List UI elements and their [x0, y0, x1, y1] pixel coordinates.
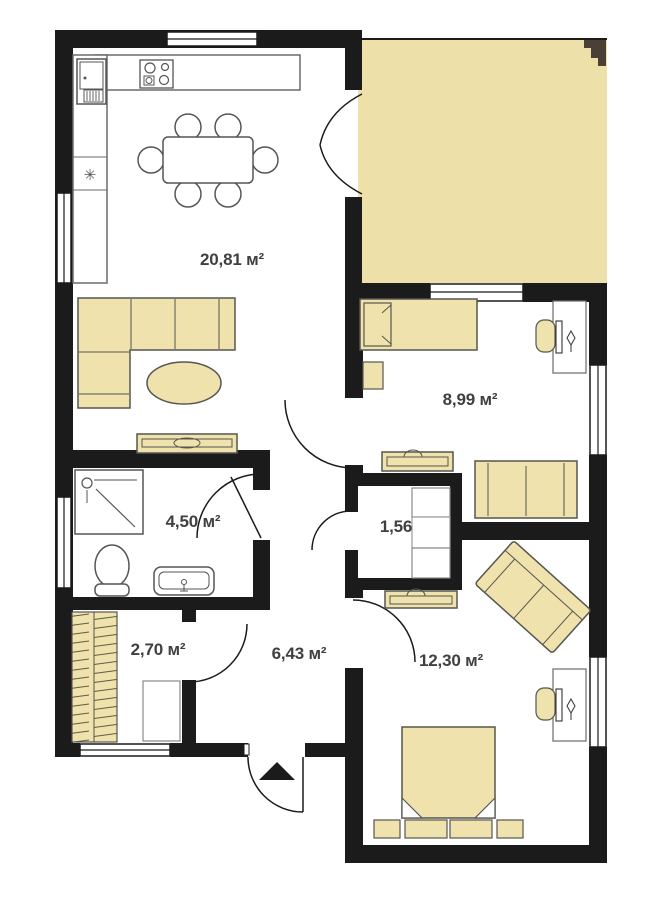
- dining-set: [138, 114, 278, 207]
- shelf: [412, 548, 450, 578]
- room-label-closet: 1,56: [380, 517, 412, 537]
- living-room-furniture: [78, 298, 237, 453]
- desk-2: [536, 669, 586, 741]
- shower: [75, 470, 143, 534]
- bedroom1-door-arc: [285, 400, 353, 468]
- room-label-bedroom-2: 12,30 м²: [419, 651, 483, 671]
- wall: [253, 540, 270, 597]
- wall: [345, 845, 607, 863]
- entrance-arrow-icon: [259, 762, 295, 780]
- floor-plan-canvas: ✳: [0, 0, 650, 900]
- room-label-hallway: 6,43 м²: [272, 644, 327, 664]
- tv-stand: [137, 434, 237, 453]
- wall: [345, 48, 362, 90]
- chair: [252, 147, 278, 173]
- room-label-living-kitchen: 20,81 м²: [200, 250, 264, 270]
- window-right-bedroom1: [590, 365, 606, 455]
- diagonal-sofa: [475, 541, 591, 654]
- pillow: [450, 820, 492, 838]
- bathroom-fixtures: [75, 470, 214, 596]
- floor-plan: ✳: [0, 0, 650, 900]
- sink: [154, 567, 214, 595]
- desk-chair: [536, 320, 555, 352]
- wall: [450, 522, 607, 540]
- fridge: [77, 59, 106, 104]
- window-bottom-wardrobe: [80, 744, 170, 756]
- console-2: [385, 589, 457, 608]
- desk-1: [536, 301, 586, 373]
- console-1: [382, 450, 453, 471]
- terrace: [358, 39, 607, 283]
- single-bed: [360, 299, 477, 350]
- freezer-icon: ✳: [84, 167, 97, 184]
- room-label-bedroom-1: 8,99 м²: [443, 390, 498, 410]
- window-top: [167, 32, 257, 46]
- room-label-wardrobe: 2,70 м²: [131, 640, 186, 660]
- door-stop: [244, 744, 249, 755]
- wall: [345, 550, 358, 578]
- kitchen-counter: [95, 55, 300, 90]
- wall: [589, 283, 607, 365]
- desk-chair: [536, 688, 555, 720]
- wardrobe-furniture: [72, 612, 180, 742]
- loveseat: [475, 461, 577, 518]
- wall: [253, 468, 270, 490]
- double-bed: [374, 727, 523, 838]
- french-door-lower-leaf: [320, 145, 362, 194]
- wall: [170, 743, 248, 757]
- bedroom2-door-arc: [353, 600, 415, 662]
- wall: [182, 610, 196, 622]
- wall: [55, 597, 270, 610]
- bed-nightstand: [374, 820, 400, 838]
- wall: [345, 486, 358, 512]
- toilet: [95, 545, 129, 596]
- closet-shelves: [412, 488, 450, 578]
- bed-nightstand: [497, 820, 523, 838]
- window-left-bathroom: [57, 497, 71, 588]
- terrace-area: [358, 40, 607, 283]
- french-door-upper-leaf: [320, 94, 362, 145]
- window-right-bedroom2: [590, 657, 606, 747]
- room-label-bathroom: 4,50 м²: [166, 512, 221, 532]
- monitor-icon: [556, 321, 562, 353]
- wall: [55, 30, 73, 757]
- chair: [215, 181, 241, 207]
- kitchen-furniture: ✳: [73, 55, 300, 283]
- wall: [345, 668, 363, 845]
- chair: [215, 114, 241, 140]
- closet-door-arc: [312, 511, 351, 550]
- shelf: [412, 488, 450, 517]
- shelf: [412, 517, 450, 548]
- dining-table: [163, 137, 253, 183]
- coffee-table: [147, 362, 221, 404]
- chair: [138, 147, 164, 173]
- wall: [589, 455, 607, 657]
- monitor-icon: [556, 689, 562, 721]
- stove: [140, 60, 173, 88]
- pillow: [405, 820, 447, 838]
- nightstand: [363, 362, 383, 389]
- wall: [345, 578, 462, 590]
- chair: [175, 181, 201, 207]
- wall: [55, 743, 80, 757]
- window-left-living: [57, 193, 71, 283]
- storage-cabinet: [143, 681, 180, 741]
- wall: [182, 680, 196, 743]
- chair: [175, 114, 201, 140]
- wardrobe-door-arc: [189, 624, 247, 682]
- wall: [345, 473, 462, 486]
